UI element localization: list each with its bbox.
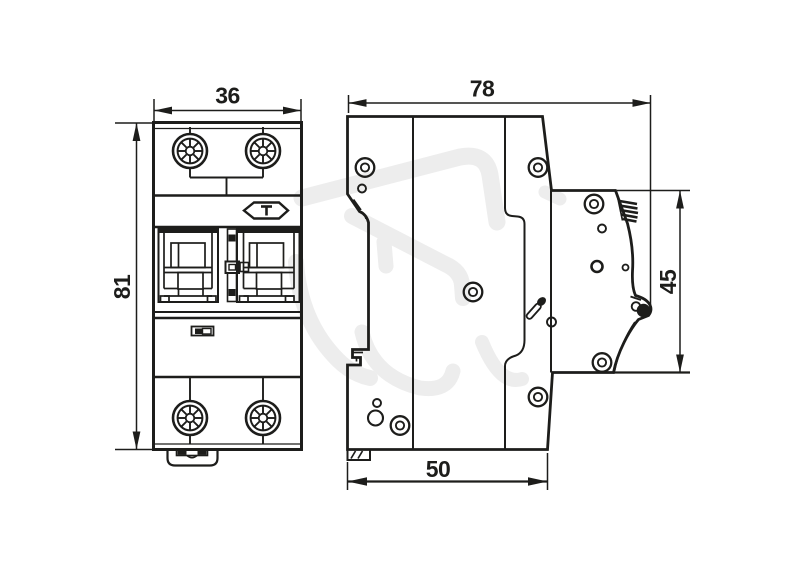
arrowhead-left [154, 107, 172, 115]
side-depth-label: 78 [470, 76, 495, 102]
arrowhead-up [133, 123, 141, 141]
din-latch [615, 297, 651, 372]
front-din-clip [168, 450, 218, 466]
busbar-claw-teeth [618, 197, 639, 222]
arrowhead-right [633, 99, 651, 107]
status-indicator-window [192, 327, 214, 336]
terminal-screw-top-right [246, 134, 280, 168]
arrowhead-left [348, 477, 368, 485]
arrowhead-down [676, 355, 684, 373]
arrowhead-right [528, 477, 548, 485]
dimension-front-width: 36 [154, 83, 301, 127]
arrowhead-right [283, 107, 301, 115]
toggle-pole-left [159, 229, 219, 303]
arrowhead-left [349, 99, 367, 107]
test-screw [244, 203, 288, 219]
terminal-screw-bottom-left [173, 401, 207, 435]
front-view [154, 123, 302, 466]
base-depth-label: 50 [426, 456, 451, 482]
arrowhead-up [676, 191, 684, 209]
dimension-base-depth: 50 [348, 453, 548, 490]
technical-drawing: 36 81 78 [0, 0, 800, 566]
terminal-screw-bottom-right [246, 401, 280, 435]
side-din-clip [348, 450, 371, 461]
arrowhead-down [133, 432, 141, 450]
dimension-front-height: 81 [109, 123, 157, 450]
trip-lever [530, 295, 548, 316]
din-recess-height-label: 45 [655, 269, 681, 294]
terminal-screw-top-left [173, 134, 207, 168]
toggle-switch-area [159, 229, 300, 303]
front-width-label: 36 [215, 83, 240, 109]
front-height-label: 81 [109, 274, 135, 299]
drawing-canvas: 36 81 78 [0, 0, 800, 566]
drawing-linework: 36 81 78 [109, 76, 690, 491]
